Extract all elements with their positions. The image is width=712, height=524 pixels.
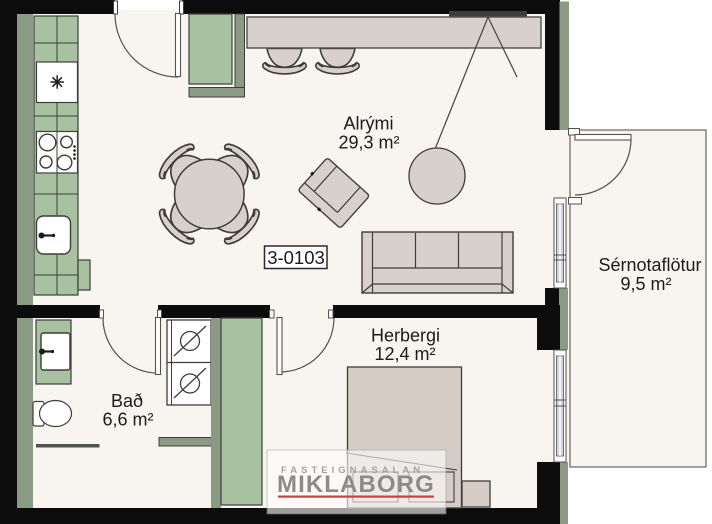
- svg-text:Bað: Bað: [111, 391, 143, 411]
- svg-text:6,6 m²: 6,6 m²: [102, 410, 153, 430]
- svg-text:MIKLABORG: MIKLABORG: [277, 471, 435, 498]
- svg-text:3-0103: 3-0103: [267, 247, 325, 268]
- svg-text:9,5 m²: 9,5 m²: [620, 274, 671, 294]
- svg-text:Herbergi: Herbergi: [371, 326, 440, 346]
- svg-text:Sérnotaflötur: Sérnotaflötur: [598, 255, 701, 275]
- svg-text:Alrými: Alrými: [344, 114, 394, 134]
- svg-text:29,3 m²: 29,3 m²: [338, 133, 399, 153]
- svg-text:12,4 m²: 12,4 m²: [374, 344, 435, 364]
